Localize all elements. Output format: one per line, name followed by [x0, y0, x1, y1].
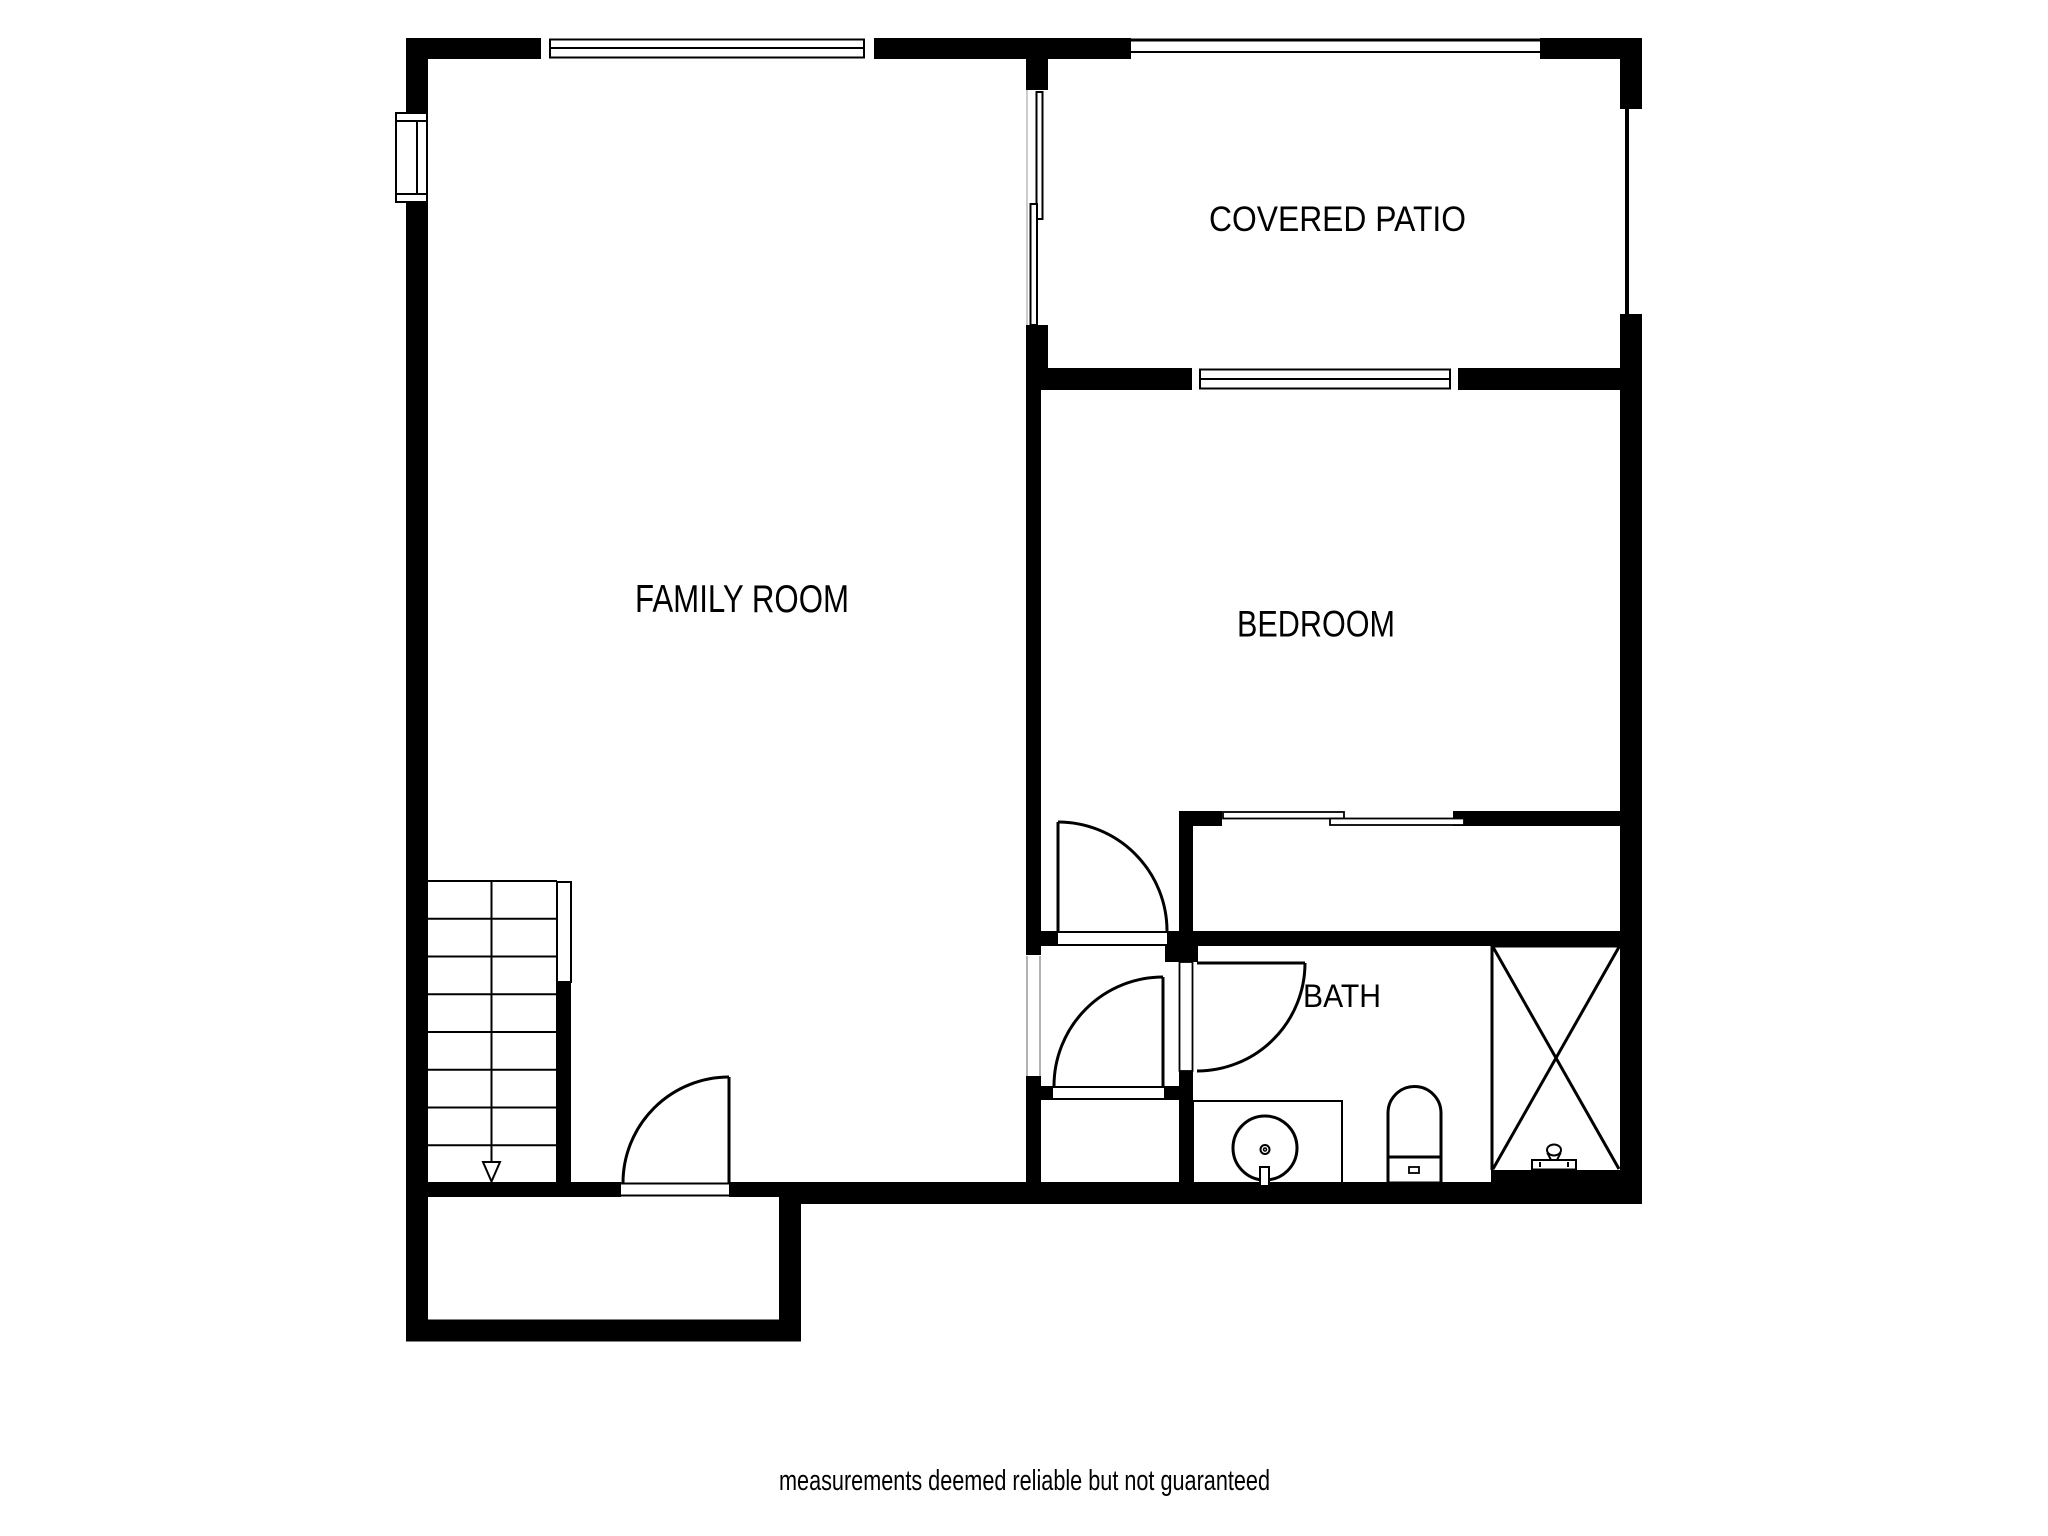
- svg-text:COVERED PATIO: COVERED PATIO: [1209, 200, 1466, 239]
- svg-text:BEDROOM: BEDROOM: [1237, 604, 1395, 645]
- svg-text:measurements deemed reliable b: measurements deemed reliable but not gua…: [779, 1465, 1270, 1497]
- svg-text:BATH: BATH: [1303, 978, 1381, 1014]
- svg-text:FAMILY ROOM: FAMILY ROOM: [635, 578, 849, 621]
